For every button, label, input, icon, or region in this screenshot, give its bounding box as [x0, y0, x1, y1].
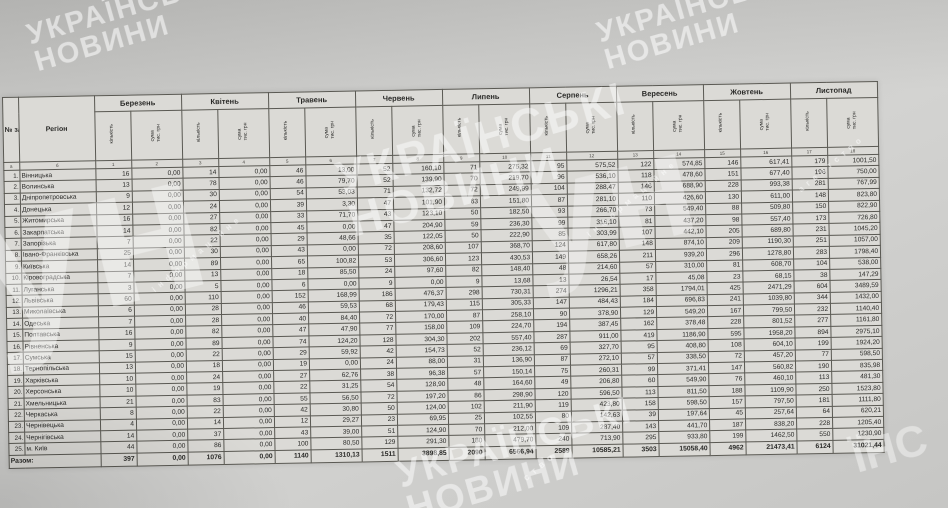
sum-cell: 101,90: [393, 197, 444, 209]
row-number: 12.: [6, 295, 22, 307]
row-number: 1.: [4, 170, 20, 182]
sum-cell: 442,10: [655, 226, 706, 238]
count-cell: 82: [184, 223, 220, 235]
count-cell: 150: [793, 201, 829, 213]
total-count-cell: 4962: [710, 442, 746, 456]
col-subheader-sum: суматис. грн: [392, 105, 444, 155]
count-cell: 115: [446, 298, 482, 310]
col-subheader-count: кількість: [182, 110, 219, 160]
col-subheader-sum: суматис. грн: [218, 109, 270, 159]
count-cell: 199: [795, 338, 831, 350]
sum-cell: 69,95: [397, 413, 448, 425]
sum-cell: 327,70: [570, 341, 621, 353]
sum-cell: 557,40: [483, 332, 534, 344]
count-cell: 45: [271, 222, 307, 234]
count-cell: 52: [447, 344, 483, 356]
count-cell: 23: [707, 271, 743, 283]
count-cell: 72: [444, 185, 480, 197]
sum-cell: 1140,40: [831, 302, 882, 314]
sum-cell: 139,90: [393, 174, 444, 186]
sum-cell: 0,00: [220, 257, 271, 269]
sum-cell: 993,38: [741, 179, 792, 191]
sum-cell: 620,21: [832, 405, 883, 417]
sum-cell: 2471,29: [743, 281, 794, 293]
sum-cell: 122,05: [394, 231, 445, 243]
count-cell: 17: [620, 272, 656, 284]
count-cell: 14: [97, 225, 133, 237]
sum-cell: 1186,90: [657, 328, 708, 340]
sum-cell: 0,00: [223, 393, 274, 405]
sum-cell: 0,00: [137, 441, 188, 453]
count-cell: 28: [186, 315, 222, 327]
sum-cell: 598,50: [658, 397, 709, 409]
count-cell: 3: [98, 282, 134, 294]
count-cell: 72: [360, 311, 396, 323]
sum-cell: 0,00: [220, 234, 271, 246]
sum-cell: 1432,00: [830, 291, 881, 303]
count-cell: 23: [361, 414, 397, 426]
count-cell: 73: [619, 204, 655, 216]
watermark-text: НОВИНИ: [602, 0, 792, 74]
sum-cell: 124,90: [398, 424, 449, 436]
sum-cell: 0,00: [135, 361, 186, 373]
sum-cell: 102,55: [484, 411, 535, 423]
count-cell: 7: [97, 236, 133, 248]
count-cell: 108: [708, 339, 744, 351]
sum-cell: 258,10: [483, 309, 534, 321]
sum-cell: 557,40: [742, 213, 793, 225]
count-cell: 152: [272, 290, 308, 302]
row-number: 22.: [8, 409, 24, 421]
sum-cell: 338,50: [657, 351, 708, 363]
sum-cell: 0,00: [224, 428, 275, 440]
count-cell: 122: [618, 159, 654, 171]
row-number: 8.: [5, 250, 21, 262]
count-cell: 16: [97, 214, 133, 226]
total-sum-cell: 6566,94: [485, 446, 536, 460]
sum-cell: 29,27: [310, 415, 361, 427]
count-cell: 30: [184, 246, 220, 258]
count-cell: 25: [448, 412, 484, 424]
count-cell: 85: [532, 228, 568, 240]
row-number: 15.: [7, 330, 23, 342]
sum-cell: 481,30: [832, 371, 883, 383]
count-cell: 81: [707, 259, 743, 271]
count-cell: 419: [621, 329, 657, 341]
count-cell: 24: [187, 372, 223, 384]
count-cell: 147: [533, 297, 569, 309]
count-cell: 232: [795, 303, 831, 315]
count-cell: 184: [620, 295, 656, 307]
sum-cell: 1958,20: [744, 327, 795, 339]
sum-cell: 204,90: [394, 219, 445, 231]
count-cell: 68: [359, 300, 395, 312]
sum-cell: 0,00: [222, 359, 273, 371]
total-sum-cell: 21473,41: [746, 441, 797, 455]
sum-cell: 124,20: [309, 335, 360, 347]
count-cell: 104: [794, 258, 830, 270]
count-cell: 52: [357, 175, 393, 187]
count-cell: 104: [531, 183, 567, 195]
total-count-cell: 2090: [449, 446, 485, 460]
sum-cell: 1045,20: [829, 223, 880, 235]
total-sum-cell: 31021,44: [833, 439, 884, 453]
count-cell: 72: [361, 391, 397, 403]
count-cell: 46: [272, 302, 308, 314]
row-number: 4.: [4, 204, 20, 216]
sum-cell: 0,00: [219, 166, 270, 178]
sum-cell: 303,99: [568, 228, 619, 240]
sum-cell: 53,03: [306, 187, 357, 199]
col-subheader-count: кількість: [530, 103, 567, 153]
count-cell: 54: [361, 380, 397, 392]
count-cell: 42: [274, 404, 310, 416]
sum-cell: 80,50: [311, 437, 362, 449]
count-cell: 251: [793, 235, 829, 247]
count-cell: 70: [444, 173, 480, 185]
sum-cell: 933,80: [659, 431, 710, 443]
sum-cell: 260,31: [571, 364, 622, 376]
photo-shadow-overlay: [0, 0, 948, 90]
sum-cell: 0,00: [222, 348, 273, 360]
total-sum-cell: 1310,13: [311, 449, 362, 463]
row-number: 5.: [5, 216, 21, 228]
sum-cell: 85,50: [308, 267, 359, 279]
sum-cell: 123,10: [394, 208, 445, 220]
sum-cell: 305,33: [482, 297, 533, 309]
count-cell: 211: [619, 250, 655, 262]
count-cell: 28: [185, 303, 221, 315]
count-cell: 33: [271, 210, 307, 222]
sum-cell: 378,90: [570, 307, 621, 319]
sum-cell: 0,00: [222, 314, 273, 326]
sum-cell: 0,00: [220, 223, 271, 235]
count-cell: 148: [619, 238, 655, 250]
sum-cell: 611,00: [741, 190, 792, 202]
count-cell: 99: [532, 217, 568, 229]
count-cell: 42: [360, 346, 396, 358]
sum-cell: 3,30: [306, 198, 357, 210]
count-cell: 89: [186, 337, 222, 349]
col-subheader-sum: суматис. грн: [827, 97, 879, 147]
count-cell: 9: [96, 191, 132, 203]
count-cell: 14: [98, 259, 134, 271]
count-cell: 82: [186, 326, 222, 338]
count-cell: 287: [534, 331, 570, 343]
sum-cell: 457,20: [744, 350, 795, 362]
col-subheader-sum: суматис. грн: [653, 101, 705, 151]
count-cell: 110: [185, 292, 221, 304]
sum-cell: 617,41: [741, 156, 792, 168]
count-cell: 46: [270, 176, 306, 188]
sum-cell: 45,08: [656, 272, 707, 284]
count-cell: 274: [533, 285, 569, 297]
count-cell: 205: [706, 225, 742, 237]
watermark-top-right: УКРАЇНСЬКІ НОВИНИ: [594, 0, 792, 74]
sum-cell: 604,10: [744, 338, 795, 350]
sum-cell: 441,70: [659, 420, 710, 432]
count-cell: 90: [534, 308, 570, 320]
sum-cell: 0,00: [135, 338, 186, 350]
sum-cell: 797,50: [745, 395, 796, 407]
sum-cell: 799,50: [744, 304, 795, 316]
col-header-month: Вересень: [616, 85, 703, 103]
sum-cell: 79,70: [306, 175, 357, 187]
count-cell: 118: [618, 170, 654, 182]
sum-cell: 249,99: [480, 184, 531, 196]
count-cell: 425: [707, 282, 743, 294]
col-subheader-sum: суматис. грн: [479, 104, 531, 154]
col-header-month: Жовтень: [703, 83, 790, 101]
sum-cell: 801,52: [744, 315, 795, 327]
sum-cell: 222,90: [481, 229, 532, 241]
count-cell: 231: [793, 224, 829, 236]
count-cell: 59: [445, 219, 481, 231]
count-cell: 7: [99, 316, 135, 328]
sum-cell: 236,30: [481, 218, 532, 230]
sum-cell: 272,10: [570, 353, 621, 365]
sum-cell: 371,41: [658, 363, 709, 375]
sum-cell: 0,00: [133, 224, 184, 236]
count-cell: 109: [447, 321, 483, 333]
row-number: 18.: [7, 364, 23, 376]
sum-cell: 509,80: [742, 202, 793, 214]
count-cell: 50: [445, 230, 481, 242]
sum-cell: 911,00: [570, 330, 621, 342]
total-count-cell: 3503: [623, 443, 659, 457]
sum-cell: 536,10: [567, 171, 618, 183]
count-cell: 146: [618, 181, 654, 193]
count-cell: 162: [621, 318, 657, 330]
row-number: 25.: [9, 444, 25, 456]
total-count-cell: 2589: [536, 445, 572, 459]
sum-cell: 208,60: [394, 242, 445, 254]
count-cell: 5: [185, 280, 221, 292]
total-sum-cell: 15058,40: [659, 442, 710, 456]
sum-cell: 197,20: [397, 390, 448, 402]
count-cell: 148: [792, 190, 828, 202]
count-cell: 86: [448, 390, 484, 402]
sum-cell: 298,90: [484, 389, 535, 401]
sum-cell: 0,00: [134, 270, 185, 282]
sum-cell: 0,00: [219, 177, 270, 189]
sum-cell: 549,90: [658, 374, 709, 386]
count-cell: 46: [270, 165, 306, 177]
sum-cell: 0,00: [223, 405, 274, 417]
sum-cell: 31,25: [310, 380, 361, 392]
sum-cell: 47,90: [309, 323, 360, 335]
sum-cell: 0,00: [134, 304, 185, 316]
count-cell: 6: [272, 279, 308, 291]
sum-cell: 151,80: [480, 195, 531, 207]
table-sheet: № з/пРегіонБерезеньКвітеньТравеньЧервень…: [2, 81, 885, 469]
count-cell: 190: [796, 360, 832, 372]
count-cell: 146: [705, 157, 741, 169]
sum-cell: 0,00: [220, 211, 271, 223]
sum-cell: 689,80: [742, 224, 793, 236]
count-cell: 88: [706, 203, 742, 215]
sum-cell: 811,50: [658, 385, 709, 397]
count-cell: 30: [183, 189, 219, 201]
sum-cell: 575,52: [567, 159, 618, 171]
count-cell: 81: [619, 216, 655, 228]
count-cell: 43: [275, 427, 311, 439]
sum-cell: 1230,90: [833, 428, 884, 440]
count-cell: 10: [100, 385, 136, 397]
count-cell: 27: [184, 212, 220, 224]
count-cell: 16: [99, 328, 135, 340]
sum-cell: 62,76: [310, 369, 361, 381]
sum-cell: 128,90: [397, 379, 448, 391]
sum-cell: 288,47: [567, 182, 618, 194]
sum-cell: 71,70: [307, 210, 358, 222]
count-cell: 89: [185, 258, 221, 270]
row-number: 24.: [9, 432, 25, 444]
col-header-month: Березень: [94, 94, 181, 112]
col-subheader-sum: суматис. грн: [566, 102, 618, 152]
col-header-month: Листопад: [790, 81, 877, 99]
sum-cell: 1924,20: [831, 337, 882, 349]
count-cell: 228: [705, 180, 741, 192]
count-cell: 595: [708, 328, 744, 340]
sum-cell: 0,00: [219, 200, 270, 212]
sum-cell: 1798,40: [829, 246, 880, 258]
row-number: 9.: [6, 261, 22, 273]
watermark-text: УКРАЇНСЬКІ: [594, 0, 784, 48]
sum-cell: 0,00: [222, 336, 273, 348]
count-cell: 50: [361, 403, 397, 415]
sum-cell: 1111,80: [832, 394, 883, 406]
count-cell: 93: [532, 206, 568, 218]
sum-cell: 549,40: [655, 203, 706, 215]
row-number: 19.: [8, 375, 24, 387]
row-number: 14.: [7, 318, 23, 330]
count-cell: 109: [536, 422, 572, 434]
col-header-region: Регіон: [19, 96, 96, 162]
sum-cell: 164,60: [484, 377, 535, 389]
count-cell: 14: [101, 430, 137, 442]
count-cell: 250: [796, 383, 832, 395]
count-cell: 24: [359, 266, 395, 278]
sum-cell: 0,00: [309, 358, 360, 370]
sum-cell: 822,90: [829, 200, 880, 212]
count-cell: 60: [98, 293, 134, 305]
count-cell: 39: [622, 409, 658, 421]
count-cell: 49: [535, 377, 571, 389]
sum-cell: 0,00: [308, 278, 359, 290]
sum-cell: 1205,40: [833, 416, 884, 428]
total-sum-cell: 10585,21: [572, 444, 623, 458]
sum-cell: 0,00: [133, 236, 184, 248]
sum-cell: 0,00: [222, 325, 273, 337]
count-cell: 604: [794, 281, 830, 293]
sum-cell: 306,60: [394, 254, 445, 266]
sum-cell: 0,00: [135, 327, 186, 339]
count-cell: 147: [709, 362, 745, 374]
count-cell: 167: [708, 305, 744, 317]
count-cell: 57: [448, 367, 484, 379]
count-cell: 51: [362, 425, 398, 437]
count-cell: 9: [359, 277, 395, 289]
row-number: 7.: [5, 239, 21, 251]
sum-cell: 437,20: [655, 215, 706, 227]
count-cell: 129: [362, 437, 398, 449]
total-count-cell: 1140: [275, 450, 311, 464]
sum-cell: 835,98: [832, 359, 883, 371]
count-cell: 188: [709, 385, 745, 397]
col-header-month: Червень: [355, 89, 442, 107]
col-header-num: № з/п: [3, 97, 20, 162]
sum-cell: 408,80: [657, 340, 708, 352]
sum-cell: 1523,80: [832, 382, 883, 394]
sum-cell: 0,00: [136, 418, 187, 430]
sum-cell: 1039,80: [743, 293, 794, 305]
count-cell: 39: [270, 199, 306, 211]
count-cell: 27: [274, 370, 310, 382]
sum-cell: 0,00: [223, 371, 274, 383]
sum-cell: 84,40: [309, 312, 360, 324]
count-cell: 40: [273, 313, 309, 325]
count-cell: 95: [621, 341, 657, 353]
sum-cell: 0,00: [133, 258, 184, 270]
count-cell: 14: [183, 167, 219, 179]
row-number: 20.: [8, 387, 24, 399]
sum-cell: 874,10: [655, 237, 706, 249]
sum-cell: 13,00: [306, 164, 357, 176]
sum-cell: 0,00: [224, 439, 275, 451]
count-cell: 25: [97, 248, 133, 260]
total-count-cell: 1511: [362, 448, 398, 462]
sum-cell: 48,66: [307, 232, 358, 244]
count-cell: 50: [445, 207, 481, 219]
sum-cell: 574,85: [654, 158, 705, 170]
count-cell: 209: [706, 237, 742, 249]
sum-cell: 538,00: [830, 257, 881, 269]
sum-cell: 158,00: [396, 322, 447, 334]
count-cell: 120: [535, 388, 571, 400]
sum-cell: 1462,50: [746, 429, 797, 441]
sum-cell: 96,38: [397, 367, 448, 379]
col-subheader-count: кількість: [443, 105, 480, 155]
count-cell: 71: [444, 162, 480, 174]
col-subheader-sum: суматис. грн: [131, 110, 183, 160]
count-cell: 19: [273, 359, 309, 371]
count-cell: 241: [707, 294, 743, 306]
sum-cell: 0,00: [221, 291, 272, 303]
count-cell: 63: [444, 196, 480, 208]
count-cell: 38: [794, 269, 830, 281]
sum-cell: 939,20: [655, 249, 706, 261]
count-cell: 57: [621, 352, 657, 364]
sum-cell: 549,20: [657, 306, 708, 318]
count-cell: 35: [358, 232, 394, 244]
sum-cell: 182,50: [481, 206, 532, 218]
count-cell: 55: [274, 393, 310, 405]
sum-cell: 726,80: [829, 211, 880, 223]
photo-background: № з/пРегіонБерезеньКвітеньТравеньЧервень…: [0, 0, 948, 508]
sum-cell: 2975,10: [831, 325, 882, 337]
count-cell: 96: [531, 172, 567, 184]
count-cell: 110: [618, 193, 654, 205]
sum-cell: 1190,30: [742, 236, 793, 248]
col-subheader-count: кількість: [791, 98, 828, 148]
sum-cell: 59,92: [309, 346, 360, 358]
sum-cell: 0,00: [134, 281, 185, 293]
count-cell: 53: [358, 254, 394, 266]
sum-cell: 88,00: [396, 356, 447, 368]
count-cell: 129: [621, 307, 657, 319]
count-cell: 119: [535, 399, 571, 411]
